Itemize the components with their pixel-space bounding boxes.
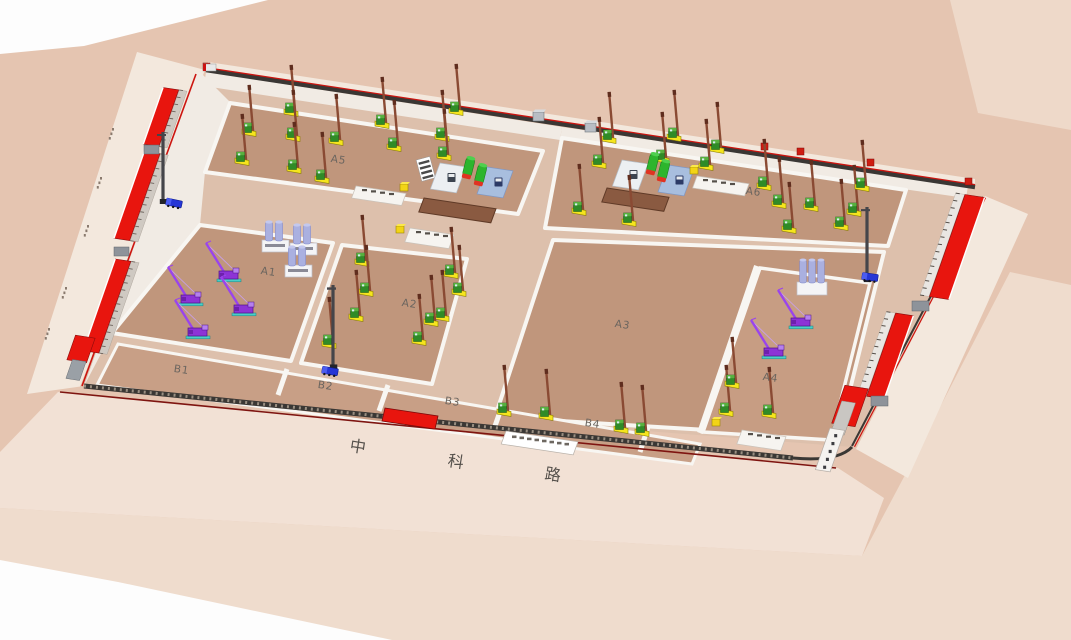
wall-post-red: [797, 148, 804, 155]
road-name-char: 中: [348, 436, 367, 457]
gate-box[interactable]: [585, 121, 598, 133]
zone-label-B2: B2: [317, 379, 334, 393]
wall-post-red: [867, 159, 874, 166]
zone-label-A6: A6: [745, 185, 762, 199]
building-end-cap: [912, 301, 929, 311]
gate-sign: [203, 64, 216, 71]
building-end-cap: [871, 396, 888, 406]
road-name-char: 科: [446, 451, 465, 472]
building-end-cap: [114, 247, 129, 256]
zone-label-A2: A2: [401, 297, 418, 311]
zone-label-A4: A4: [762, 371, 779, 385]
building-end-cap: [144, 145, 159, 154]
site-3d-view[interactable]: A5A6A1A2A3A4B1B2B3B4中科路: [0, 0, 1071, 640]
zone-label-A5: A5: [330, 153, 347, 167]
concrete-silo-building[interactable]: [797, 259, 827, 296]
zone-label-B3: B3: [444, 395, 461, 409]
zone-label-A3: A3: [614, 318, 631, 332]
bim-site-viewport[interactable]: A5A6A1A2A3A4B1B2B3B4中科路: [0, 0, 1071, 640]
zone-label-B4: B4: [584, 417, 601, 431]
road-name-char: 路: [543, 464, 562, 485]
zone-label-B1: B1: [173, 363, 190, 377]
zone-label-A1: A1: [260, 265, 277, 279]
gate-box[interactable]: [533, 110, 546, 122]
wall-post-red: [965, 178, 972, 185]
